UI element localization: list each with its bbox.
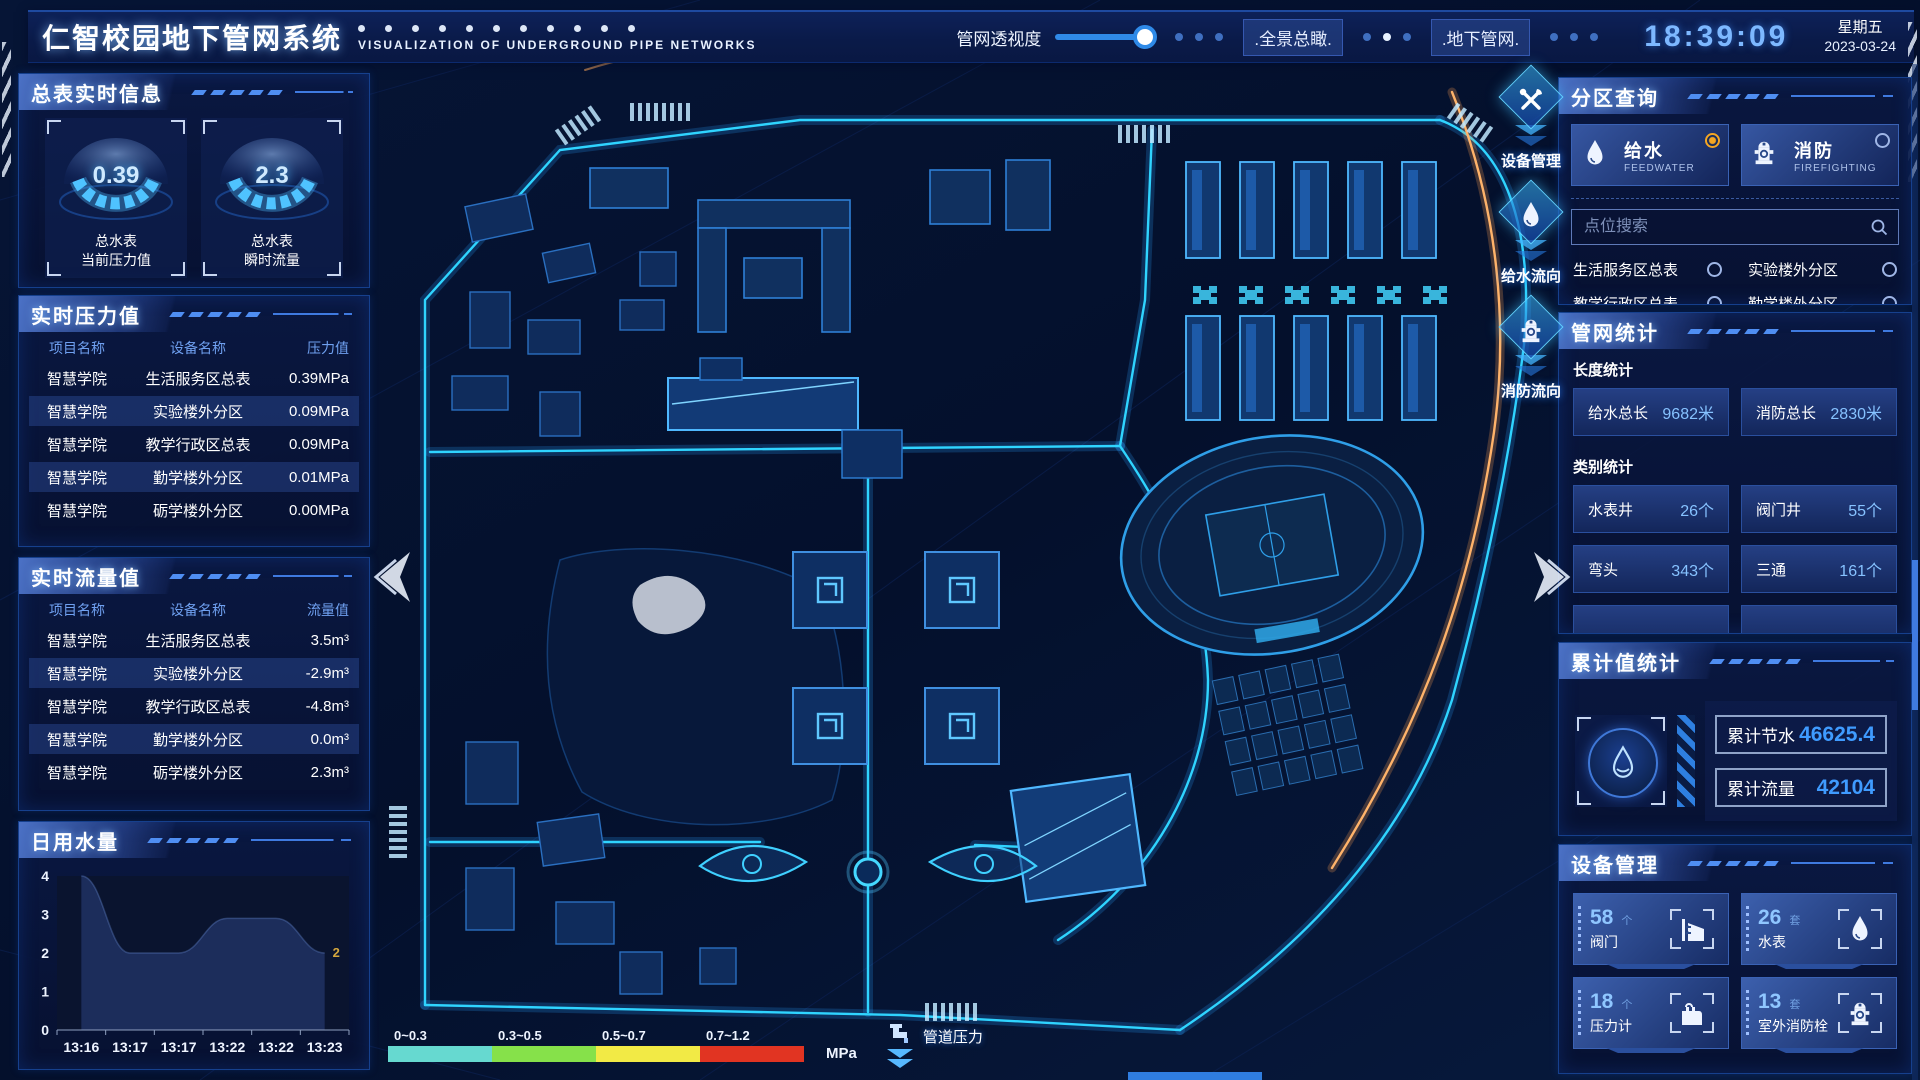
radio-unselected[interactable] — [1875, 133, 1890, 148]
chevron-down-icon — [1515, 251, 1547, 261]
map-tool-label: 消防流向 — [1501, 380, 1561, 401]
zone-tab-sublabel: FIREFIGHTING — [1794, 163, 1877, 174]
device-card-text: 18个压力计 — [1590, 990, 1632, 1036]
valve-icon — [1668, 907, 1716, 951]
slash-decoration — [149, 838, 237, 843]
bracket-corner — [1871, 1022, 1882, 1033]
device-card-阀门[interactable]: 58个阀门 — [1573, 893, 1729, 965]
stat-box — [1573, 605, 1729, 634]
zone-tab-sublabel: FEEDWATER — [1624, 163, 1695, 174]
device-unit: 套 — [1789, 999, 1800, 1011]
device-card-水表[interactable]: 26套水表 — [1741, 893, 1897, 965]
zone-list-item[interactable]: 教学行政区总表 — [1573, 287, 1722, 305]
overview-button[interactable]: .全景总瞰. — [1243, 19, 1342, 56]
transparency-slider[interactable] — [1055, 34, 1155, 40]
pressure-legend: 0~0.30.3~0.50.5~0.70.7~1.2 MPa 管道压力 — [388, 1022, 983, 1062]
device-name: 室外消防栓 — [1758, 1016, 1828, 1036]
device-card-text: 26套水表 — [1758, 906, 1800, 952]
panel-title: 日用水量 — [31, 826, 119, 855]
svg-text:2: 2 — [41, 945, 49, 961]
panel-realtime-info: 总表实时信息 0.39 总水表当前压力值 — [18, 73, 370, 288]
zone-item-label: 勤学楼外分区 — [1748, 293, 1838, 306]
bracket-corner — [1670, 993, 1681, 1004]
table-row: 智慧学院生活服务区总表0.39MPa — [29, 363, 359, 393]
panel-title: 实时压力值 — [31, 300, 141, 329]
search-input[interactable] — [1582, 217, 1870, 237]
zone-list-item[interactable]: 实验楼外分区 — [1748, 253, 1897, 285]
transparency-label: 管网透视度 — [956, 25, 1041, 50]
device-unit: 个 — [1621, 915, 1632, 927]
svg-text:13:22: 13:22 — [258, 1039, 294, 1055]
stat-value: 26个 — [1680, 497, 1714, 521]
table-cell: 3.5m³ — [271, 632, 359, 649]
device-card-text: 13套室外消防栓 — [1758, 990, 1828, 1036]
slash-decoration — [1689, 329, 1777, 334]
legend-color-swatch — [492, 1046, 596, 1062]
water-drop-icon — [1836, 907, 1884, 951]
table-header-row: 项目名称设备名称压力值 — [29, 336, 359, 360]
table-row: 智慧学院实验楼外分区0.09MPa — [29, 396, 359, 426]
table-cell: 教学行政区总表 — [125, 434, 271, 455]
zone-tab-label: 给水 — [1624, 137, 1695, 163]
table-cell: 生活服务区总表 — [125, 368, 271, 389]
device-count: 58 — [1590, 906, 1613, 929]
legend-segment: 0~0.3 — [388, 1028, 492, 1062]
cumulative-row: 累计节水46625.4 — [1715, 715, 1887, 754]
panel-title: 实时流量值 — [31, 562, 141, 591]
flow-table: 项目名称设备名称流量值智慧学院生活服务区总表3.5m³智慧学院实验楼外分区-2.… — [19, 594, 369, 789]
stat-box: 消防总长2830米 — [1741, 388, 1897, 436]
map-pan-left-arrow[interactable] — [370, 548, 414, 606]
column-header: 流量值 — [271, 600, 359, 620]
tools-icon — [1516, 78, 1546, 122]
table-row: 智慧学院生活服务区总表3.5m³ — [29, 625, 359, 655]
svg-text:13:17: 13:17 — [112, 1039, 148, 1055]
table-cell: 智慧学院 — [29, 696, 125, 717]
gauge-value: 2.3 — [201, 162, 343, 190]
bracket-corner — [1703, 993, 1714, 1004]
table-cell: 0.39MPa — [271, 370, 359, 387]
svg-text:0: 0 — [41, 1022, 49, 1038]
chevron-down-icon — [887, 1049, 913, 1058]
table-cell: 智慧学院 — [29, 762, 125, 783]
device-name: 压力计 — [1590, 1016, 1632, 1036]
panel-cumulative: 累计值统计 累计节水46625.4累计流量42104 — [1558, 642, 1912, 836]
table-cell: 0.0m³ — [271, 731, 359, 748]
svg-text:13:17: 13:17 — [161, 1039, 197, 1055]
map-tool-label: 设备管理 — [1501, 150, 1561, 171]
map-side-buttons: 设备管理给水流向消防流向 — [1488, 66, 1574, 411]
pipe-pressure-label: 管道压力 — [923, 1026, 983, 1047]
table-row: 智慧学院勤学楼外分区0.01MPa — [29, 462, 359, 492]
radio-unselected[interactable] — [1882, 262, 1897, 277]
search-box[interactable] — [1571, 209, 1899, 245]
legend-color-swatch — [596, 1046, 700, 1062]
stat-name: 三通 — [1756, 559, 1786, 580]
stat-value: 161个 — [1839, 557, 1882, 581]
zone-list-item[interactable]: 生活服务区总表 — [1573, 253, 1722, 285]
bracket-corner — [1670, 938, 1681, 949]
table-row: 智慧学院砺学楼外分区0.00MPa — [29, 495, 359, 525]
device-card-压力计[interactable]: 18个压力计 — [1573, 977, 1729, 1049]
stat-box: 三通161个 — [1741, 545, 1897, 593]
table-row: 智慧学院砺学楼外分区2.3m³ — [29, 757, 359, 787]
chevron-down-icon — [1515, 366, 1547, 376]
column-header: 设备名称 — [125, 338, 271, 358]
water-drop-icon — [1582, 138, 1612, 172]
slash-decoration — [1711, 659, 1799, 664]
legend-range-label: 0~0.3 — [388, 1028, 492, 1043]
panel-zone-query: 分区查询 给水FEEDWATER消防FIREFIGHTING 生活服务区总表实验… — [1558, 77, 1912, 305]
category-stats-label: 类别统计 — [1573, 456, 1911, 477]
bracket-corner — [1838, 938, 1849, 949]
stat-box: 阀门井55个 — [1741, 485, 1897, 533]
legend-segment: 0.5~0.7 — [596, 1028, 700, 1062]
svg-text:13:22: 13:22 — [209, 1039, 245, 1055]
panel-title: 累计值统计 — [1571, 647, 1681, 676]
underground-button[interactable]: .地下管网. — [1431, 19, 1530, 56]
legend-range-label: 0.7~1.2 — [700, 1028, 804, 1043]
bracket-corner — [1838, 993, 1849, 1004]
cumulative-values: 累计节水46625.4累计流量42104 — [1705, 701, 1897, 821]
hydrant-icon — [1519, 308, 1543, 352]
stat-box: 给水总长9682米 — [1573, 388, 1729, 436]
table-row: 智慧学院教学行政区总表0.09MPa — [29, 429, 359, 459]
dots-separator — [1550, 33, 1598, 41]
gauge-label: 总水表瞬时流量 — [201, 232, 343, 270]
device-count: 26 — [1758, 906, 1781, 929]
weekday: 星期五 — [1838, 19, 1883, 38]
cumulative-icon-frame — [1575, 715, 1667, 807]
daily-water-chart: 0123413:1613:1713:1713:2213:2213:232 — [21, 860, 363, 1066]
device-count-row: 13套 — [1758, 990, 1828, 1014]
zone-tab-firefighting[interactable]: 消防FIREFIGHTING — [1741, 124, 1899, 186]
dots-separator — [1363, 33, 1411, 41]
stat-name: 给水总长 — [1588, 402, 1648, 423]
bracket-corner — [1838, 1022, 1849, 1033]
zone-item-label: 教学行政区总表 — [1573, 293, 1678, 306]
bracket-corner — [1871, 909, 1882, 920]
bracket-corner — [1871, 993, 1882, 1004]
cumulative-row: 累计流量42104 — [1715, 768, 1887, 807]
stat-name: 弯头 — [1588, 559, 1618, 580]
stat-value: 55个 — [1848, 497, 1882, 521]
radio-unselected[interactable] — [1882, 296, 1897, 306]
legend-range-label: 0.5~0.7 — [596, 1028, 700, 1043]
bracket-corner — [1670, 909, 1681, 920]
table-cell: 砺学楼外分区 — [125, 500, 271, 521]
cumulative-value: 42104 — [1817, 776, 1875, 800]
table-cell: 0.00MPa — [271, 502, 359, 519]
zone-list: 生活服务区总表实验楼外分区教学行政区总表勤学楼外分区砺学楼外分区宿舍区泵房 — [1559, 245, 1911, 305]
device-count-row: 18个 — [1590, 990, 1632, 1014]
stat-value: 9682米 — [1662, 400, 1714, 424]
search-icon — [1870, 218, 1888, 236]
legend-color-swatch — [388, 1046, 492, 1062]
table-cell: 智慧学院 — [29, 434, 125, 455]
zone-tab-label: 消防 — [1794, 137, 1877, 163]
panel-daily-water: 日用水量 0123413:1613:1713:1713:2213:2213:23… — [18, 821, 370, 1070]
gauge-flow: 2.3 总水表瞬时流量 — [201, 118, 343, 278]
length-stats-label: 长度统计 — [1573, 359, 1911, 380]
water-drop-icon — [1608, 745, 1638, 781]
chevron-down-icon — [1515, 136, 1547, 146]
slash-decoration — [171, 574, 259, 579]
slash-decoration — [1689, 861, 1777, 866]
panel-title: 分区查询 — [1571, 82, 1659, 111]
svg-text:1: 1 — [41, 984, 49, 1000]
table-cell: 智慧学院 — [29, 467, 125, 488]
table-cell: 教学行政区总表 — [125, 696, 271, 717]
map-tool-消防流向[interactable]: 消防流向 — [1501, 296, 1561, 401]
svg-text:4: 4 — [41, 868, 49, 884]
legend-segment: 0.3~0.5 — [492, 1028, 596, 1062]
table-cell: 2.3m³ — [271, 764, 359, 781]
device-unit: 个 — [1621, 999, 1632, 1011]
device-card-室外消防栓[interactable]: 13套室外消防栓 — [1741, 977, 1897, 1049]
zone-list-item[interactable]: 勤学楼外分区 — [1748, 287, 1897, 305]
table-cell: 0.09MPa — [271, 436, 359, 453]
table-cell: 勤学楼外分区 — [125, 467, 271, 488]
legend-segment: 0.7~1.2 — [700, 1028, 804, 1062]
zone-tab-labels: 消防FIREFIGHTING — [1794, 137, 1877, 174]
panel-realtime-flow: 实时流量值 项目名称设备名称流量值智慧学院生活服务区总表3.5m³智慧学院实验楼… — [18, 557, 370, 811]
map-pan-right-arrow[interactable] — [1530, 548, 1574, 606]
stat-value: 343个 — [1671, 557, 1714, 581]
clock: 18:39:09 — [1644, 20, 1788, 54]
device-card-text: 58个阀门 — [1590, 906, 1632, 952]
device-count: 18 — [1590, 990, 1613, 1013]
zone-item-label: 实验楼外分区 — [1748, 259, 1838, 280]
cumulative-value: 46625.4 — [1799, 723, 1875, 747]
device-count-row: 26套 — [1758, 906, 1800, 930]
device-unit: 套 — [1789, 915, 1800, 927]
table-row: 智慧学院实验楼外分区-2.9m³ — [29, 658, 359, 688]
cumulative-name: 累计流量 — [1727, 775, 1795, 800]
zone-item-label: 生活服务区总表 — [1573, 259, 1678, 280]
date: 2023-03-24 — [1824, 38, 1896, 56]
panel-device-management: 设备管理 58个阀门26套水表18个压力计13套室外消防栓 — [1558, 844, 1912, 1074]
hydrant-icon — [1836, 991, 1884, 1035]
table-cell: 智慧学院 — [29, 630, 125, 651]
gauge-pressure: 0.39 总水表当前压力值 — [45, 118, 187, 278]
hydrant-icon — [1752, 138, 1782, 172]
table-cell: 智慧学院 — [29, 663, 125, 684]
table-cell: 实验楼外分区 — [125, 663, 271, 684]
gauge-label: 总水表当前压力值 — [45, 232, 187, 270]
slash-decoration — [1689, 94, 1777, 99]
legend-color-swatch — [700, 1046, 804, 1062]
radio-selected[interactable] — [1705, 133, 1720, 148]
table-cell: 智慧学院 — [29, 500, 125, 521]
stat-box: 弯头343个 — [1573, 545, 1729, 593]
table-row: 智慧学院教学行政区总表-4.8m³ — [29, 691, 359, 721]
svg-text:3: 3 — [41, 907, 49, 923]
panel-title: 管网统计 — [1571, 317, 1659, 346]
svg-text:13:23: 13:23 — [307, 1039, 343, 1055]
column-header: 设备名称 — [125, 600, 271, 620]
table-cell: 智慧学院 — [29, 729, 125, 750]
stat-name: 阀门井 — [1756, 499, 1801, 520]
dots-separator — [1175, 33, 1223, 41]
zone-tab-labels: 给水FEEDWATER — [1624, 137, 1695, 174]
table-header-row: 项目名称设备名称流量值 — [29, 598, 359, 622]
column-header: 压力值 — [271, 338, 359, 358]
panel-realtime-pressure: 实时压力值 项目名称设备名称压力值智慧学院生活服务区总表0.39MPa智慧学院实… — [18, 295, 370, 547]
table-cell: -4.8m³ — [271, 698, 359, 715]
svg-text:13:16: 13:16 — [63, 1039, 99, 1055]
legend-unit: MPa — [826, 1045, 857, 1062]
app-title: 仁智校园地下管网系统 — [42, 17, 342, 57]
bottom-progress-bar — [1128, 1072, 1262, 1080]
stat-box: 水表井26个 — [1573, 485, 1729, 533]
hazard-stripes-left — [2, 42, 11, 177]
page-scrollbar[interactable] — [1912, 64, 1918, 1080]
bracket-corner — [1871, 938, 1882, 949]
header-bar: 仁智校园地下管网系统 VISUALIZATION OF UNDERGROUND … — [28, 10, 1914, 63]
map-tool-设备管理[interactable]: 设备管理 — [1501, 66, 1561, 171]
zone-tab-feedwater[interactable]: 给水FEEDWATER — [1571, 124, 1729, 186]
radio-unselected[interactable] — [1707, 262, 1722, 277]
table-cell: -2.9m³ — [271, 665, 359, 682]
table-cell: 0.01MPa — [271, 469, 359, 486]
pressure-table: 项目名称设备名称压力值智慧学院生活服务区总表0.39MPa智慧学院实验楼外分区0… — [19, 332, 369, 527]
table-cell: 勤学楼外分区 — [125, 729, 271, 750]
device-name: 水表 — [1758, 932, 1800, 952]
stripe-decoration — [1677, 715, 1695, 807]
slash-decoration — [171, 312, 259, 317]
column-header: 项目名称 — [29, 338, 125, 358]
stat-name: 水表井 — [1588, 499, 1633, 520]
table-cell: 智慧学院 — [29, 368, 125, 389]
map-tool-给水流向[interactable]: 给水流向 — [1501, 181, 1561, 286]
column-header: 项目名称 — [29, 600, 125, 620]
map-tool-label: 给水流向 — [1501, 265, 1561, 286]
svg-text:2: 2 — [333, 945, 340, 960]
stat-value: 2830米 — [1830, 400, 1882, 424]
gauge-value: 0.39 — [45, 162, 187, 190]
faucet-icon — [887, 1022, 913, 1046]
table-cell: 实验楼外分区 — [125, 401, 271, 422]
table-cell: 智慧学院 — [29, 401, 125, 422]
header-dots — [358, 22, 756, 34]
chevron-down-icon — [887, 1059, 913, 1068]
bracket-corner — [1703, 909, 1714, 920]
bracket-corner — [1703, 1022, 1714, 1033]
panel-title: 总表实时信息 — [31, 78, 163, 107]
panel-title: 设备管理 — [1571, 849, 1659, 878]
bracket-corner — [1703, 938, 1714, 949]
stat-name: 消防总长 — [1756, 402, 1816, 423]
radio-unselected[interactable] — [1707, 296, 1722, 306]
device-count: 13 — [1758, 990, 1781, 1013]
slider-handle[interactable] — [1133, 25, 1157, 49]
cumulative-name: 累计节水 — [1727, 722, 1795, 747]
table-cell: 砺学楼外分区 — [125, 762, 271, 783]
pressure-gauge-icon — [1668, 991, 1716, 1035]
water-drop-icon — [1518, 193, 1544, 237]
slash-decoration — [193, 90, 281, 95]
table-row: 智慧学院勤学楼外分区0.0m³ — [29, 724, 359, 754]
device-name: 阀门 — [1590, 932, 1632, 952]
stat-box — [1741, 605, 1897, 634]
app-subtitle: VISUALIZATION OF UNDERGROUND PIPE NETWOR… — [358, 38, 756, 52]
scrollbar-thumb[interactable] — [1912, 560, 1918, 710]
legend-range-label: 0.3~0.5 — [492, 1028, 596, 1043]
table-cell: 0.09MPa — [271, 403, 359, 420]
table-cell: 生活服务区总表 — [125, 630, 271, 651]
bracket-corner — [1838, 909, 1849, 920]
bracket-corner — [1670, 1022, 1681, 1033]
device-count-row: 58个 — [1590, 906, 1632, 930]
panel-pipe-stats: 管网统计 长度统计 给水总长9682米消防总长2830米 类别统计 水表井26个… — [1558, 312, 1912, 634]
